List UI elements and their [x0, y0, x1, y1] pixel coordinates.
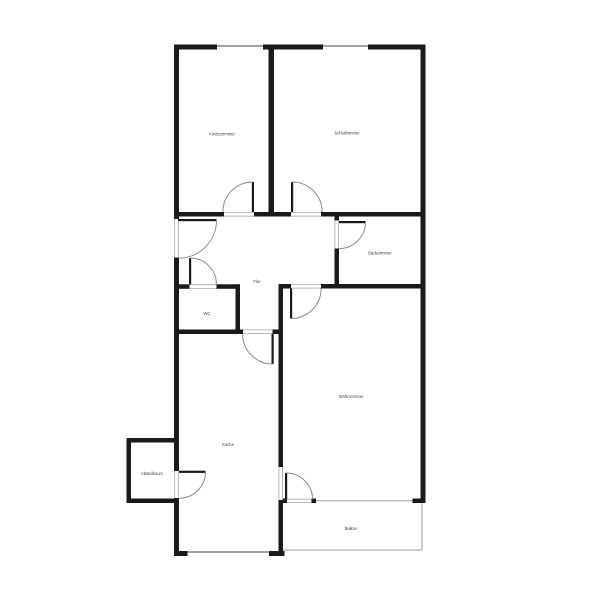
svg-text:Flur: Flur: [253, 279, 261, 284]
svg-text:WC: WC: [204, 311, 211, 316]
svg-text:Abstellraum: Abstellraum: [141, 471, 164, 476]
svg-text:Wohnzimmer: Wohnzimmer: [339, 394, 364, 399]
svg-text:Küche: Küche: [222, 442, 235, 447]
svg-text:Kinderzimmer: Kinderzimmer: [209, 132, 235, 137]
svg-text:Schlafzimmer: Schlafzimmer: [334, 131, 360, 136]
svg-text:Balkon: Balkon: [345, 526, 358, 531]
svg-text:Badezimmer: Badezimmer: [368, 251, 392, 256]
